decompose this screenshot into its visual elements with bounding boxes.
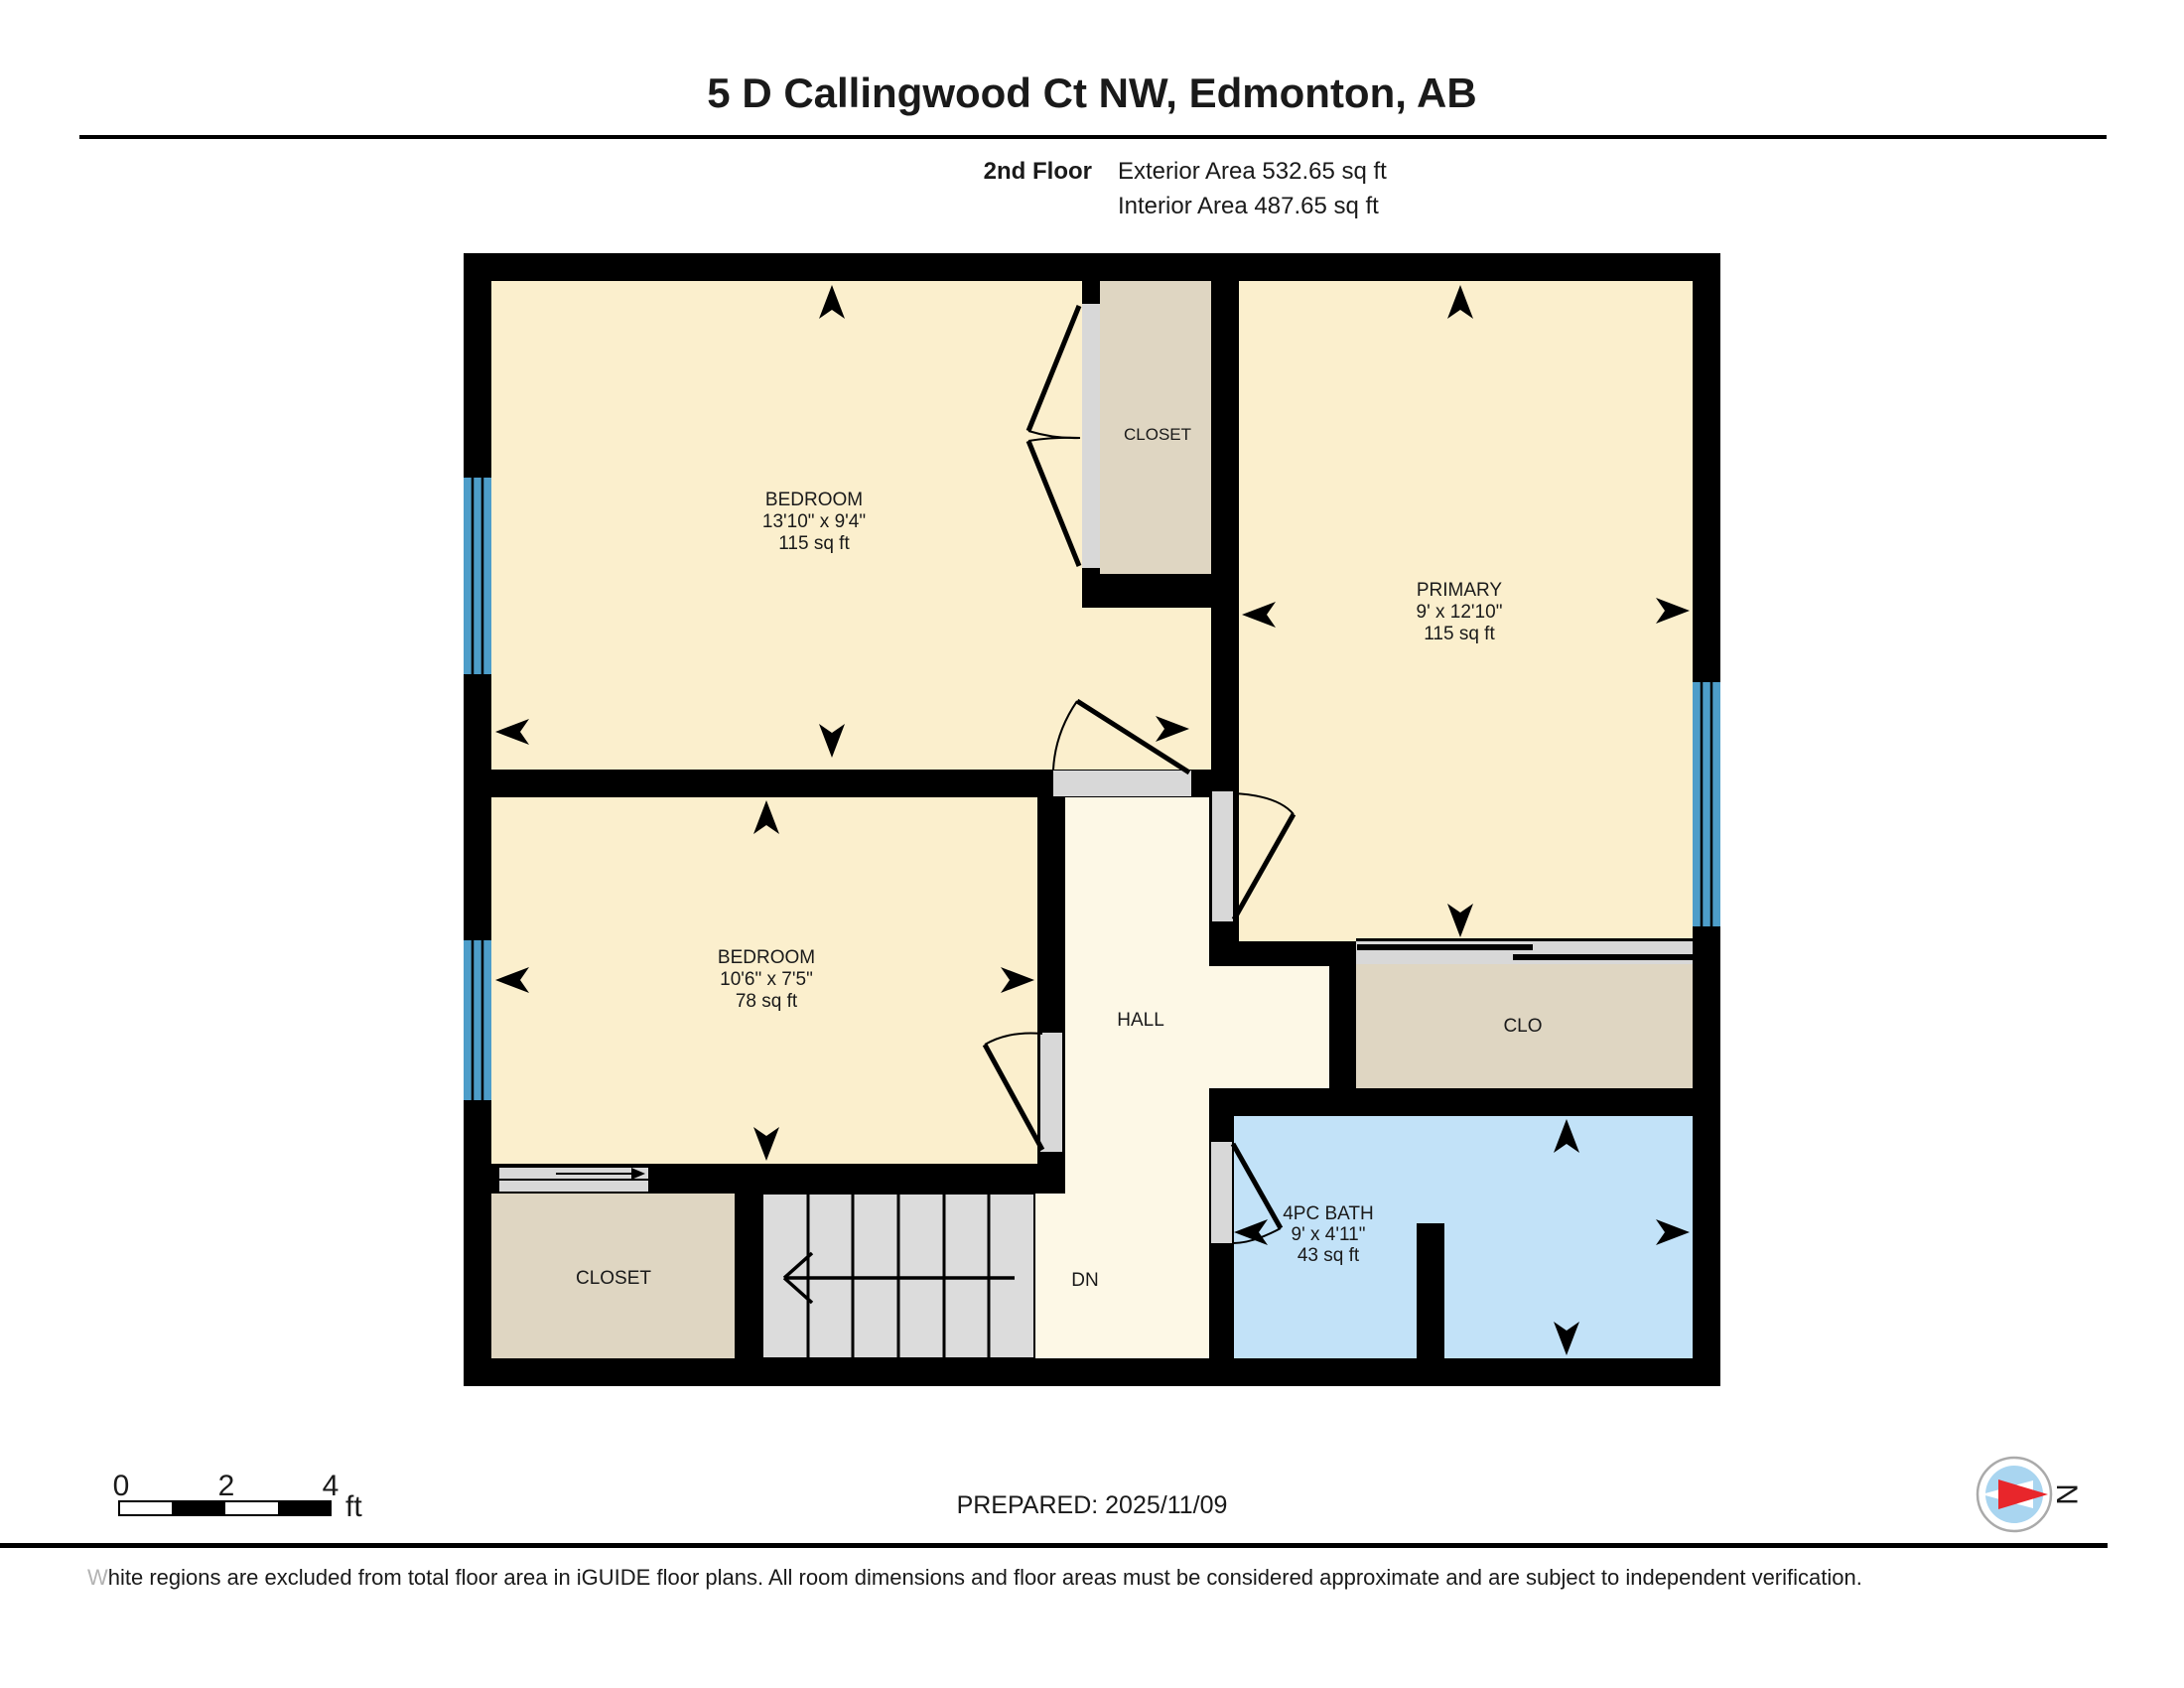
window-primary (1693, 682, 1720, 926)
primary-area: 115 sq ft (1424, 624, 1495, 644)
bath-interior-wall (1417, 1223, 1444, 1358)
bedroom-mid-dims: 10'6" x 7'5" (720, 969, 813, 990)
primary-name: PRIMARY (1417, 580, 1503, 601)
closet-top-door-track (1082, 304, 1100, 568)
bedroom-mid-name: BEDROOM (718, 947, 815, 968)
window-bedroom-mid (464, 940, 491, 1100)
header-rule (79, 135, 2107, 139)
compass: N (1978, 1458, 2083, 1531)
stairs-dn-label: DN (1071, 1270, 1098, 1291)
bedroom-mid-area: 78 sq ft (736, 991, 798, 1012)
room-hall-landing-fill (1034, 1194, 1065, 1358)
clo-label: CLO (1503, 1016, 1542, 1037)
prepared-date: PREPARED: 2025/11/09 (957, 1491, 1228, 1519)
floor-label: 2nd Floor (984, 158, 1092, 185)
exterior-area-label: Exterior Area 532.65 sq ft (1118, 158, 1387, 185)
disclaimer-first-letter: W (87, 1565, 108, 1590)
footer-rule (0, 1543, 2108, 1548)
compass-north-label: N (2050, 1483, 2083, 1505)
scale-tick-4: 4 (323, 1470, 340, 1502)
hall-label: HALL (1117, 1010, 1164, 1031)
floorplan: BEDROOM 13'10" x 9'4" 115 sq ft CLOSET P… (464, 253, 1720, 1386)
room-hall-nook-fill (1209, 966, 1329, 1088)
closet-bottom-label: CLOSET (576, 1268, 651, 1289)
interior-area-label: Interior Area 487.65 sq ft (1118, 193, 1379, 219)
closet-top-label: CLOSET (1124, 425, 1191, 444)
primary-dims: 9' x 12'10" (1417, 602, 1503, 623)
scale-tick-0: 0 (113, 1470, 130, 1502)
bedroom-top-dims: 13'10" x 9'4" (762, 511, 866, 532)
floorplan-canvas: 5 D Callingwood Ct NW, Edmonton, AB 2nd … (0, 0, 2184, 1688)
scale-tick-2: 2 (218, 1470, 235, 1502)
bath-name: 4PC BATH (1283, 1203, 1374, 1224)
window-bedroom-top (464, 478, 491, 674)
bath-area: 43 sq ft (1297, 1245, 1360, 1266)
bedroom-top-name: BEDROOM (765, 490, 863, 510)
page-title: 5 D Callingwood Ct NW, Edmonton, AB (707, 70, 1476, 116)
disclaimer: White regions are excluded from total fl… (87, 1565, 1862, 1590)
bath-dims: 9' x 4'11" (1292, 1224, 1366, 1245)
scale-bar: 0 2 4 ft (113, 1470, 363, 1523)
disclaimer-body: hite regions are excluded from total flo… (108, 1565, 1862, 1590)
bedroom-top-area: 115 sq ft (778, 533, 850, 554)
scale-unit-label: ft (345, 1490, 362, 1523)
clo-sliding-doors (1356, 938, 1693, 964)
